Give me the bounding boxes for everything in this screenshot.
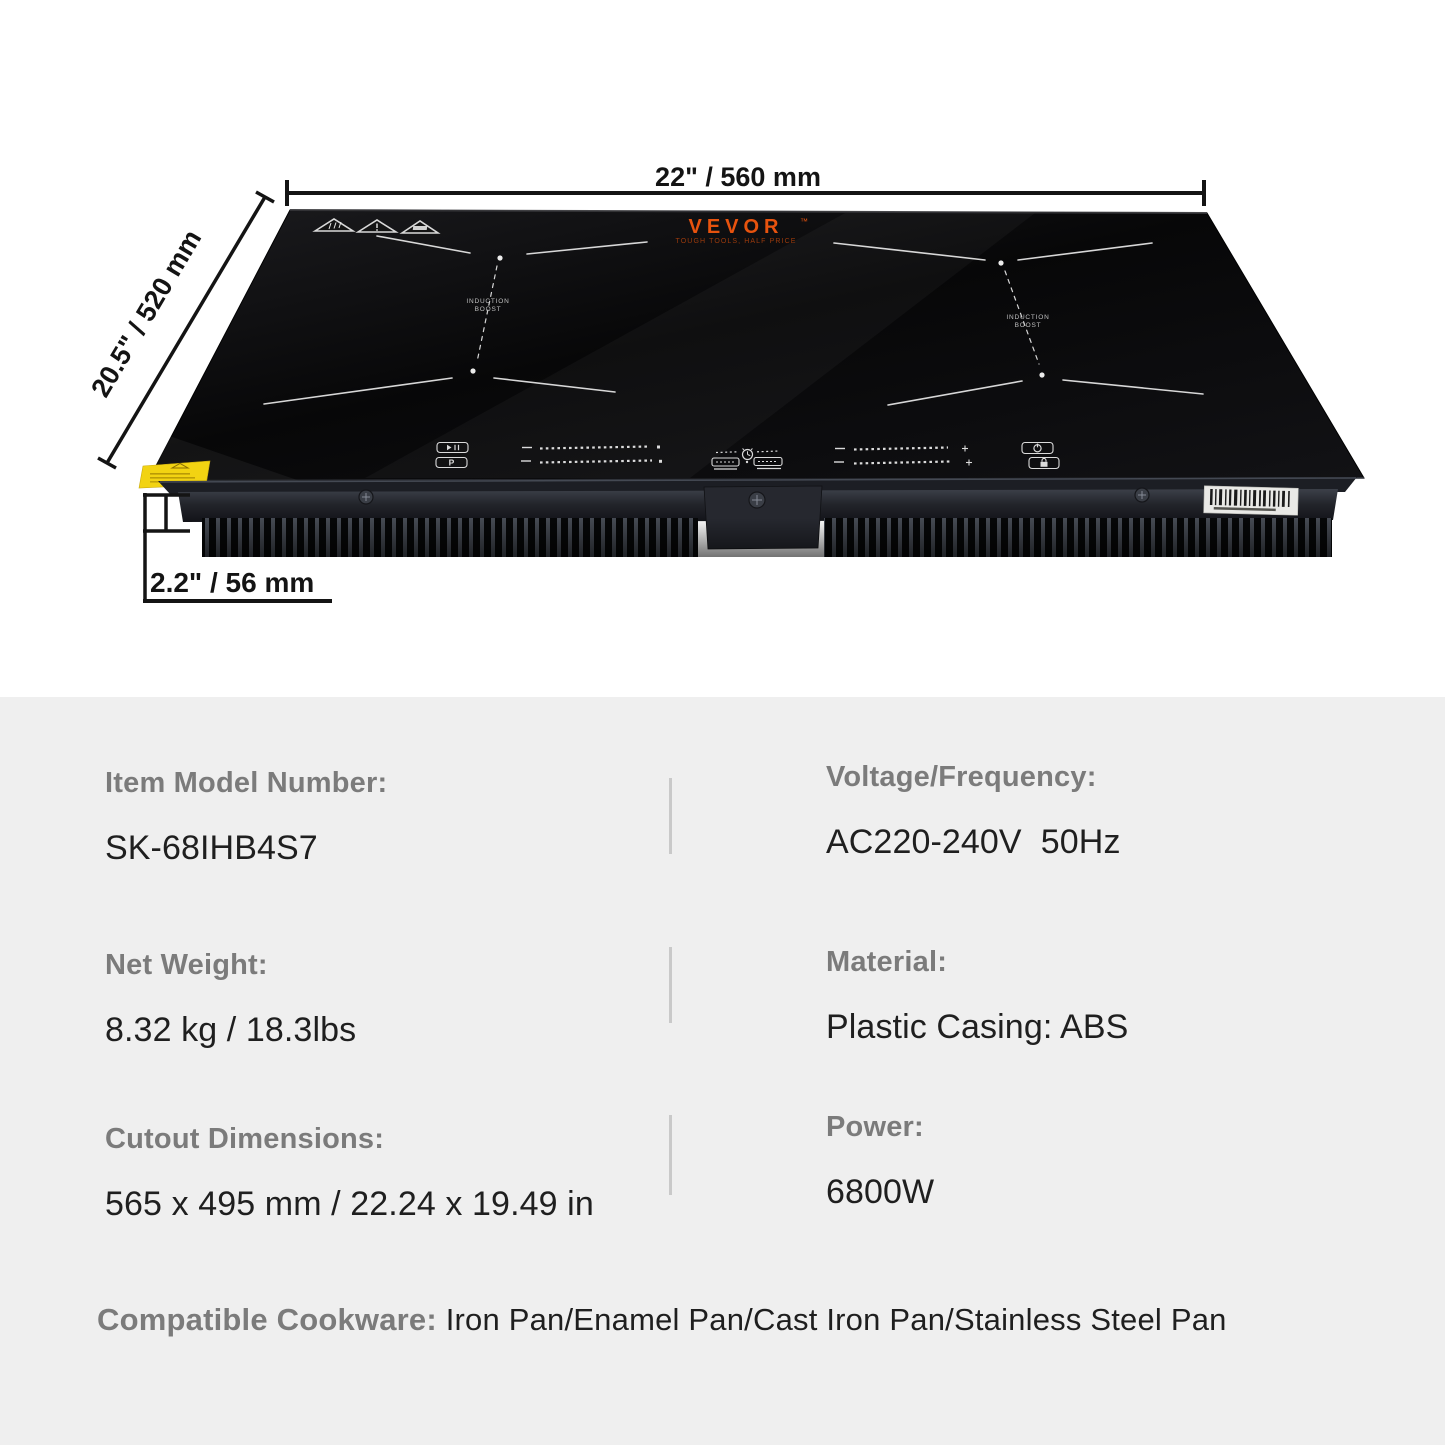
depth-dim-tick-bottom — [98, 458, 116, 468]
product-spec-page: 22" / 560 mm 20.5" / 520 mm — [0, 0, 1445, 1445]
spec-label: Material: — [826, 945, 1128, 1007]
cooktop: VEVOR ™ TOUGH TOOLS, HALF PRICE INDUCTIO… — [139, 210, 1364, 557]
screw-icon — [1135, 488, 1149, 502]
warning-icons — [315, 219, 438, 233]
trademark-icon: ™ — [800, 217, 808, 226]
base — [158, 477, 1357, 557]
footer-label: Compatible Cookware: — [97, 1302, 437, 1337]
spec-item-power: Power: 6800W — [826, 1110, 934, 1212]
height-dimension-label: 2.2" / 56 mm — [150, 567, 314, 598]
zone-label: BOOST — [1015, 322, 1042, 329]
spec-label: Net Weight: — [105, 948, 356, 1010]
zone-node — [497, 255, 502, 260]
spec-value: SK-68IHB4S7 — [105, 828, 387, 868]
zone-node — [470, 368, 475, 373]
zone-label: BOOST — [475, 306, 502, 313]
zone-node — [998, 260, 1003, 265]
zone-node — [1039, 372, 1044, 377]
spec-item-material: Material: Plastic Casing: ABS — [826, 945, 1128, 1047]
spec-value: Plastic Casing: ABS — [826, 1007, 1128, 1047]
spec-value: 8.32 kg / 18.3lbs — [105, 1010, 356, 1050]
column-divider — [669, 778, 672, 854]
zone-label: INDUCTION — [1006, 314, 1049, 321]
spec-label: Cutout Dimensions: — [105, 1122, 594, 1184]
column-divider — [669, 947, 672, 1023]
spec-item-model-number: Item Model Number: SK-68IHB4S7 — [105, 766, 387, 868]
spec-item-voltage-frequency: Voltage/Frequency: AC220-240V 50Hz — [826, 760, 1121, 862]
footer-value: Iron Pan/Enamel Pan/Cast Iron Pan/Stainl… — [437, 1302, 1227, 1337]
spec-value: AC220-240V 50Hz — [826, 822, 1121, 862]
slider-end-dot — [657, 446, 660, 449]
screw-icon — [749, 492, 765, 508]
width-dimension: 22" / 560 mm — [287, 162, 1204, 206]
width-dimension-label: 22" / 560 mm — [655, 162, 821, 192]
spec-item-cutout-dimensions: Cutout Dimensions: 565 x 495 mm / 22.24 … — [105, 1122, 594, 1224]
spec-value: 565 x 495 mm / 22.24 x 19.49 in — [105, 1184, 594, 1224]
depth-dim-tick-top — [256, 192, 274, 202]
spec-value: 6800W — [826, 1172, 934, 1212]
boost-button-label: P — [449, 458, 455, 468]
barcode-sticker — [1204, 486, 1299, 515]
compatible-cookware-line: Compatible Cookware: Iron Pan/Enamel Pan… — [97, 1302, 1227, 1338]
product-illustration: 22" / 560 mm 20.5" / 520 mm — [0, 0, 1445, 700]
screw-icon — [359, 490, 373, 504]
spec-label: Voltage/Frequency: — [826, 760, 1121, 822]
spec-label: Power: — [826, 1110, 934, 1172]
column-divider — [669, 1115, 672, 1195]
slider-end-dot — [659, 460, 662, 463]
spec-label: Item Model Number: — [105, 766, 387, 828]
depth-dimension-label: 20.5" / 520 mm — [85, 225, 207, 402]
brand-slogan: TOUGH TOOLS, HALF PRICE — [676, 238, 797, 245]
zone-label: INDUCTION — [466, 298, 509, 305]
spec-section: Item Model Number: SK-68IHB4S7 Net Weigh… — [0, 697, 1445, 1445]
spec-item-net-weight: Net Weight: 8.32 kg / 18.3lbs — [105, 948, 356, 1050]
brand-logo-text: VEVOR — [688, 216, 783, 238]
